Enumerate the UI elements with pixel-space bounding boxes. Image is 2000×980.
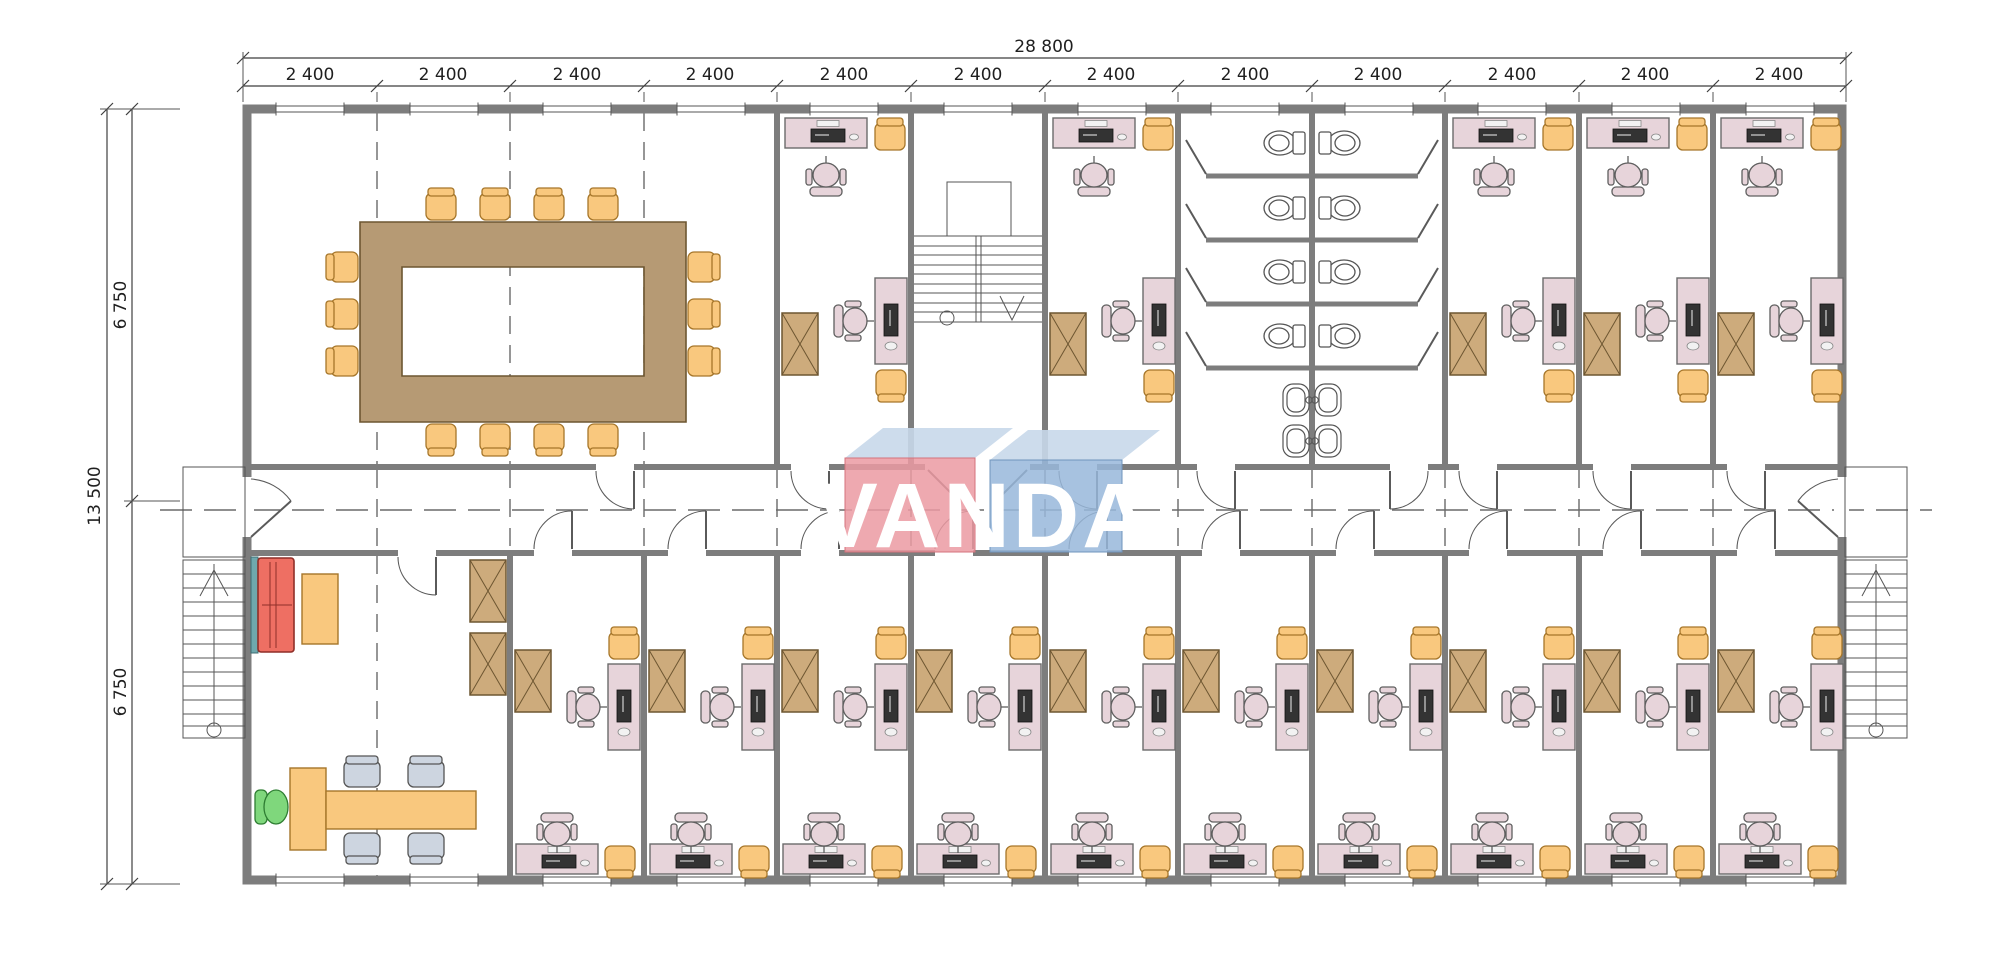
dim-module: 2 400 — [1221, 65, 1270, 85]
executive-chair — [264, 790, 288, 824]
floor-plan-drawing: 28 800 2 400 2 400 2 400 2 400 2 400 2 4… — [0, 0, 2000, 980]
office-room — [515, 627, 640, 878]
dim-module: 2 400 — [954, 65, 1003, 85]
logo-text: VANDA — [816, 465, 1151, 567]
dim-half-depth: 6 750 — [111, 281, 131, 330]
dim-module: 2 400 — [1354, 65, 1403, 85]
office-room — [1718, 118, 1843, 402]
wall-accent — [251, 557, 258, 653]
floor-plan-canvas: 28 800 2 400 2 400 2 400 2 400 2 400 2 4… — [0, 0, 2000, 980]
office-room — [1718, 627, 1843, 878]
stair-direction-arrow — [1000, 296, 1024, 320]
sofa — [258, 558, 294, 652]
office-room — [782, 627, 907, 878]
dim-total-depth: 13 500 — [85, 466, 105, 525]
dim-module: 2 400 — [1621, 65, 1670, 85]
dim-module: 2 400 — [419, 65, 468, 85]
external-stair-left — [183, 560, 245, 738]
stairwell — [914, 182, 1042, 325]
office-room — [1584, 118, 1709, 402]
entrance-door-right — [1798, 479, 1838, 537]
dim-half-depth: 6 750 — [111, 668, 131, 717]
dim-module: 2 400 — [686, 65, 735, 85]
office-room — [1050, 118, 1175, 402]
office-room — [649, 627, 774, 878]
meeting-table — [360, 222, 686, 422]
external-stair-right — [1845, 560, 1907, 738]
executive-office — [251, 557, 506, 864]
dim-module: 2 400 — [1488, 65, 1537, 85]
office-room — [1450, 627, 1575, 878]
office-room — [916, 627, 1041, 878]
dim-module: 2 400 — [820, 65, 869, 85]
office-room — [1050, 627, 1175, 878]
landing-left — [183, 467, 245, 557]
office-room — [782, 118, 907, 402]
dim-module: 2 400 — [553, 65, 602, 85]
dim-module: 2 400 — [1087, 65, 1136, 85]
landing-right — [1845, 467, 1907, 557]
office-room — [1317, 627, 1442, 878]
dim-module: 2 400 — [286, 65, 335, 85]
dim-module: 2 400 — [1755, 65, 1804, 85]
vanda-logo: VANDA — [816, 428, 1160, 567]
office-room — [1183, 627, 1308, 878]
entrance-door-left — [251, 479, 291, 537]
office-room — [1450, 118, 1575, 402]
meeting-room — [326, 188, 720, 456]
dim-total-width: 28 800 — [1014, 37, 1073, 57]
office-room — [1584, 627, 1709, 878]
executive-desk — [255, 756, 476, 864]
coffee-table — [302, 574, 338, 644]
